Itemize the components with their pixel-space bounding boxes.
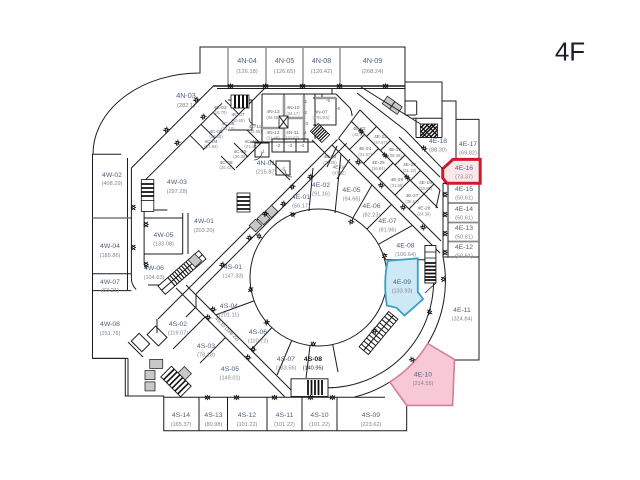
svg-text:-2: -2 [276, 143, 281, 149]
svg-text:4S-02: 4S-02 [169, 321, 187, 328]
svg-text:(282.1): (282.1) [177, 103, 195, 109]
svg-text:4S-05: 4S-05 [221, 366, 239, 373]
svg-text:(408.29): (408.29) [102, 181, 123, 187]
svg-text:(101.22): (101.22) [309, 422, 330, 428]
svg-text:(TRUSS): (TRUSS) [313, 115, 331, 120]
svg-text:(201.11): (201.11) [219, 313, 240, 319]
svg-text:4N-03: 4N-03 [176, 91, 196, 100]
svg-text:(88.30): (88.30) [429, 148, 447, 154]
svg-text:(31.58): (31.58) [390, 183, 404, 188]
svg-text:4S-13: 4S-13 [204, 412, 222, 419]
svg-text:(36.55): (36.55) [266, 115, 280, 120]
svg-text:-1: -1 [260, 149, 265, 155]
svg-text:(31.40): (31.40) [266, 136, 280, 141]
svg-text:4S-01: 4S-01 [224, 264, 242, 271]
svg-text:4E-09: 4E-09 [393, 279, 411, 286]
svg-text:4N-08: 4N-08 [312, 56, 332, 65]
svg-text:(43.93): (43.93) [352, 132, 366, 137]
svg-text:4F: 4F [555, 37, 585, 67]
svg-text:(215.87): (215.87) [256, 170, 277, 176]
svg-text:(119.07): (119.07) [168, 331, 189, 337]
svg-text:4N-01: 4N-01 [257, 160, 276, 167]
svg-text:4W-01: 4W-01 [194, 218, 214, 225]
svg-text:4W-07: 4W-07 [100, 279, 120, 286]
svg-text:(34.17): (34.17) [286, 111, 300, 116]
svg-text:-3: -3 [288, 143, 293, 149]
svg-text:4S-08: 4S-08 [304, 356, 322, 363]
svg-text:(214.55): (214.55) [413, 381, 434, 387]
svg-text:4E-17: 4E-17 [459, 141, 477, 148]
svg-text:(126.65): (126.65) [274, 69, 296, 75]
svg-text:(24.39): (24.39) [417, 212, 431, 217]
svg-text:4E-18: 4E-18 [429, 138, 447, 145]
svg-text:(251.76): (251.76) [100, 331, 121, 337]
svg-text:(50.61): (50.61) [455, 254, 473, 260]
svg-text:(126.42): (126.42) [311, 69, 333, 75]
svg-text:(21.47): (21.47) [244, 144, 258, 149]
svg-text:4S-11: 4S-11 [276, 412, 294, 419]
svg-text:(91.16): (91.16) [312, 192, 330, 198]
svg-text:(140.95): (140.95) [303, 366, 324, 372]
svg-text:(133.93): (133.93) [392, 289, 413, 295]
svg-text:(30.55): (30.55) [419, 186, 433, 191]
svg-text:(73.37): (73.37) [455, 175, 473, 181]
svg-text:(36.64): (36.64) [372, 166, 386, 171]
svg-text:(106.64): (106.64) [395, 252, 416, 258]
svg-text:(27.84): (27.84) [204, 144, 218, 149]
svg-text:(126.18): (126.18) [236, 69, 258, 75]
svg-text:(30.30): (30.30) [233, 154, 247, 159]
svg-text:(31.10): (31.10) [221, 126, 235, 131]
svg-text:4S-07: 4S-07 [277, 356, 295, 363]
svg-text:(63.21): (63.21) [101, 288, 119, 294]
svg-text:4E-12: 4E-12 [455, 244, 473, 251]
svg-text:-5: -5 [326, 98, 331, 104]
svg-text:(50.61): (50.61) [455, 235, 473, 241]
svg-text:4E-10: 4E-10 [414, 372, 432, 379]
svg-text:(50.61): (50.61) [455, 216, 473, 222]
svg-text:(37.57): (37.57) [374, 140, 388, 145]
svg-text:-4: -4 [300, 143, 305, 149]
svg-text:4S-04: 4S-04 [220, 303, 238, 310]
svg-text:(223.62): (223.62) [361, 422, 382, 428]
svg-text:4W-03: 4W-03 [167, 179, 187, 186]
svg-text:4E-01: 4E-01 [292, 194, 310, 201]
svg-text:(133.08): (133.08) [153, 242, 174, 248]
svg-text:4E-14: 4E-14 [455, 206, 473, 213]
svg-text:4E-15: 4E-15 [455, 186, 473, 193]
svg-text:(69.82): (69.82) [459, 151, 477, 157]
svg-text:(147.33): (147.33) [223, 274, 244, 280]
svg-text:(20.41): (20.41) [219, 165, 233, 170]
svg-text:(101.22): (101.22) [237, 422, 258, 428]
svg-text:4E-08: 4E-08 [396, 243, 414, 250]
svg-text:(104.63): (104.63) [144, 275, 165, 281]
svg-text:4E-05: 4E-05 [342, 187, 360, 194]
svg-text:(133.56): (133.56) [276, 366, 297, 372]
svg-text:4S-10: 4S-10 [310, 412, 328, 419]
svg-text:(149.01): (149.01) [220, 376, 241, 382]
svg-text:(56.17): (56.17) [292, 204, 310, 210]
svg-text:(94.66): (94.66) [343, 197, 361, 203]
svg-text:4E-07: 4E-07 [378, 218, 396, 225]
svg-text:(38.28): (38.28) [388, 153, 402, 158]
svg-text:-3: -3 [304, 121, 309, 127]
svg-text:(297.28): (297.28) [167, 189, 188, 195]
svg-text:-1: -1 [303, 99, 308, 105]
svg-text:(324.84): (324.84) [452, 317, 473, 323]
svg-text:(165.37): (165.37) [171, 422, 192, 428]
svg-text:(33.67): (33.67) [286, 136, 300, 141]
svg-text:4E-11: 4E-11 [453, 307, 471, 314]
svg-text:4N-04: 4N-04 [237, 56, 257, 65]
svg-text:4W-05: 4W-05 [154, 232, 174, 239]
svg-text:4E-02: 4E-02 [312, 182, 330, 189]
svg-text:(35.57): (35.57) [405, 199, 419, 204]
svg-text:(27.00): (27.00) [209, 134, 223, 139]
svg-text:-5: -5 [281, 167, 286, 173]
svg-text:(110.72): (110.72) [248, 339, 269, 345]
svg-text:4E-16: 4E-16 [455, 165, 473, 172]
svg-text:4E-13: 4E-13 [455, 225, 473, 232]
svg-text:(203.20): (203.20) [194, 228, 215, 234]
svg-text:(50.61): (50.61) [455, 196, 473, 202]
svg-text:4W-02: 4W-02 [102, 172, 122, 179]
svg-text:(80.98): (80.98) [205, 422, 223, 428]
svg-text:(32.25): (32.25) [323, 160, 337, 165]
svg-text:4W-08: 4W-08 [100, 321, 120, 328]
svg-text:4S-09: 4S-09 [362, 412, 380, 419]
svg-text:(81.96): (81.96) [379, 228, 397, 234]
svg-text:(268.24): (268.24) [362, 69, 384, 75]
svg-text:-6: -6 [336, 106, 341, 112]
svg-text:4S-12: 4S-12 [238, 412, 256, 419]
svg-text:(101.22): (101.22) [274, 422, 295, 428]
svg-text:(78.18): (78.18) [197, 353, 215, 359]
svg-text:4S-06: 4S-06 [249, 329, 267, 336]
svg-text:4E-06: 4E-06 [362, 203, 380, 210]
svg-text:4N-09: 4N-09 [363, 56, 383, 65]
svg-text:4N-05: 4N-05 [275, 56, 295, 65]
svg-text:(189.86): (189.86) [100, 253, 121, 259]
svg-text:4S-14: 4S-14 [172, 412, 190, 419]
svg-text:(31.57): (31.57) [358, 152, 372, 157]
svg-text:(21.96): (21.96) [248, 129, 262, 134]
svg-text:-4: -4 [302, 131, 307, 137]
svg-text:4S-03: 4S-03 [197, 343, 215, 350]
svg-text:-2: -2 [303, 110, 308, 116]
svg-text:(16.70): (16.70) [213, 110, 227, 115]
svg-text:4W-04: 4W-04 [100, 243, 120, 250]
svg-text:(31.18): (31.18) [403, 168, 417, 173]
